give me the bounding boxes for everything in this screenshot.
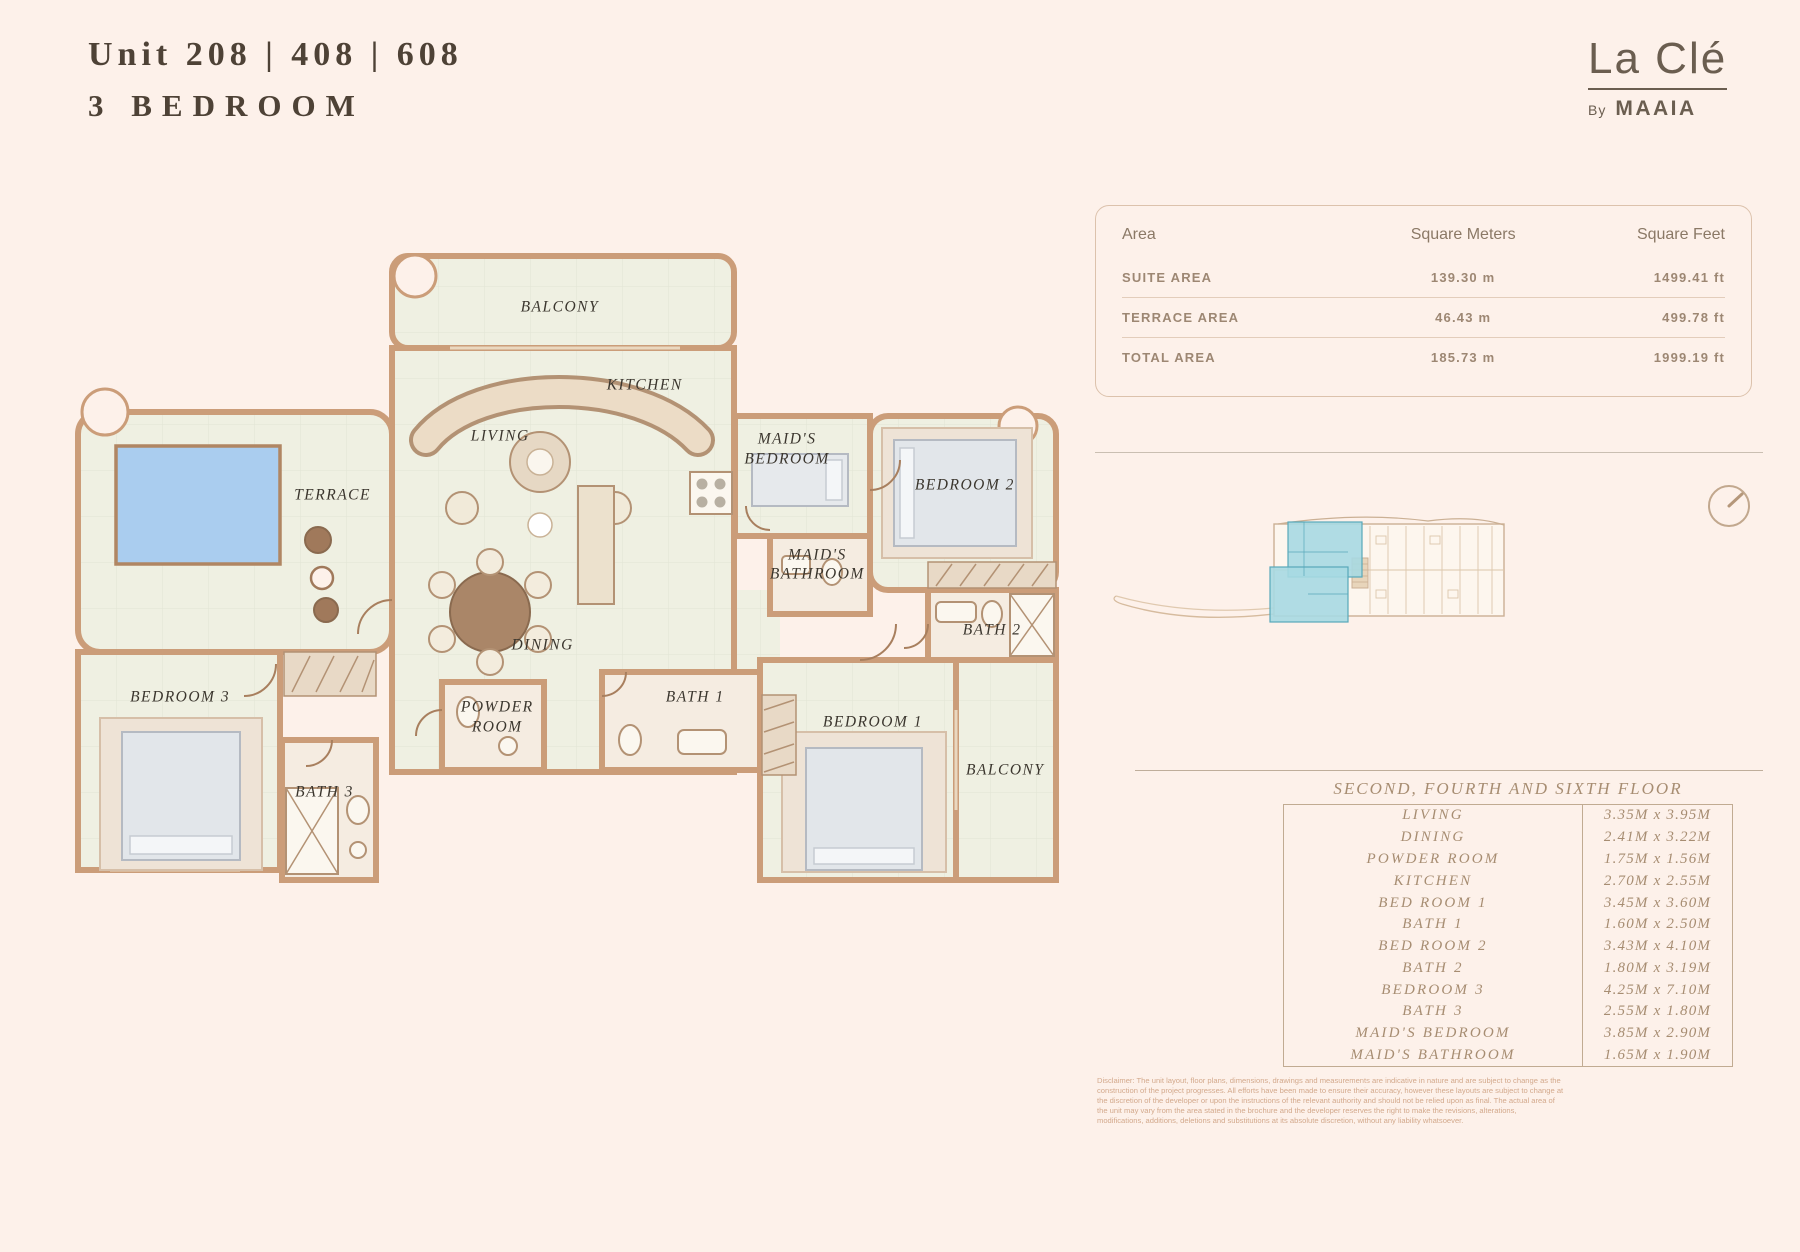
dim-room: MAID'S BEDROOM bbox=[1284, 1023, 1582, 1045]
dim-size: 1.80M x 3.19M bbox=[1582, 957, 1732, 979]
table-row: MAID'S BEDROOM3.85M x 2.90M bbox=[1284, 1023, 1732, 1045]
key-plan-drawing bbox=[1108, 512, 1538, 647]
row-label: TOTAL AREA bbox=[1122, 350, 1360, 365]
dim-room: BED ROOM 1 bbox=[1284, 892, 1582, 914]
dim-size: 3.43M x 4.10M bbox=[1582, 936, 1732, 958]
row-sqm: 185.73 m bbox=[1360, 350, 1566, 365]
row-label: TERRACE AREA bbox=[1122, 310, 1360, 325]
room-label-terrace: TERRACE bbox=[294, 485, 371, 504]
dim-size: 1.65M x 1.90M bbox=[1582, 1045, 1732, 1067]
brand-logo: La Clé By MAAIA bbox=[1588, 34, 1727, 121]
table-row: POWDER ROOM1.75M x 1.56M bbox=[1284, 849, 1732, 871]
room-label-maids-bathroom: MAID'S BATHROOM bbox=[758, 546, 876, 585]
table-row: LIVING3.35M x 3.95M bbox=[1284, 805, 1732, 827]
floor-dimensions-title: SECOND, FOURTH AND SIXTH FLOOR bbox=[1283, 779, 1733, 799]
room-label-maids-bedroom: MAID'S BEDROOM bbox=[728, 430, 846, 469]
room-label-bath1: BATH 1 bbox=[666, 688, 725, 707]
room-label-bedroom2: BEDROOM 2 bbox=[915, 475, 1015, 494]
row-label: SUITE AREA bbox=[1122, 270, 1360, 285]
row-sqft: 499.78 ft bbox=[1566, 310, 1725, 325]
brand-company: MAAIA bbox=[1615, 97, 1696, 121]
dim-room: BATH 3 bbox=[1284, 1001, 1582, 1023]
dim-room: DINING bbox=[1284, 827, 1582, 849]
sqm-col-header: Square Meters bbox=[1360, 226, 1566, 244]
room-label-balcony-right: BALCONY bbox=[966, 760, 1045, 779]
floor-plan: BALCONY KITCHEN LIVING MAID'S BEDROOM BE… bbox=[70, 240, 1080, 1010]
brand-name: La Clé bbox=[1588, 34, 1727, 90]
table-row: BATH 32.55M x 1.80M bbox=[1284, 1001, 1732, 1023]
room-label-balcony-top: BALCONY bbox=[521, 297, 600, 316]
dim-room: BEDROOM 3 bbox=[1284, 979, 1582, 1001]
area-col-header: Area bbox=[1122, 226, 1360, 244]
room-label-living: LIVING bbox=[471, 426, 530, 445]
dim-size: 2.55M x 1.80M bbox=[1582, 1001, 1732, 1023]
dim-size: 4.25M x 7.10M bbox=[1582, 979, 1732, 1001]
dim-room: MAID'S BATHROOM bbox=[1284, 1045, 1582, 1067]
table-row: MAID'S BATHROOM1.65M x 1.90M bbox=[1284, 1045, 1732, 1067]
sqft-col-header: Square Feet bbox=[1566, 226, 1725, 244]
table-row: BEDROOM 34.25M x 7.10M bbox=[1284, 979, 1732, 1001]
row-sqm: 46.43 m bbox=[1360, 310, 1566, 325]
dim-size: 3.35M x 3.95M bbox=[1582, 805, 1732, 827]
dim-size: 3.45M x 3.60M bbox=[1582, 892, 1732, 914]
page-title: Unit 208 | 408 | 608 3 BEDROOM bbox=[88, 36, 463, 124]
dim-room: LIVING bbox=[1284, 805, 1582, 827]
dim-room: BATH 2 bbox=[1284, 957, 1582, 979]
table-row: TERRACE AREA 46.43 m 499.78 ft bbox=[1122, 297, 1725, 337]
table-row: TOTAL AREA 185.73 m 1999.19 ft bbox=[1122, 337, 1725, 377]
brand-wordmark: La Clé bbox=[1588, 34, 1727, 90]
dim-room: BATH 1 bbox=[1284, 914, 1582, 936]
north-compass-icon bbox=[1705, 482, 1753, 530]
table-row: BED ROOM 23.43M x 4.10M bbox=[1284, 936, 1732, 958]
unit-title: Unit 208 | 408 | 608 bbox=[88, 36, 463, 74]
row-sqft: 1499.41 ft bbox=[1566, 270, 1725, 285]
dim-room: KITCHEN bbox=[1284, 870, 1582, 892]
disclaimer-text: Disclaimer: The unit layout, floor plans… bbox=[1097, 1076, 1565, 1126]
brand-byline: By MAAIA bbox=[1588, 97, 1727, 121]
dim-size: 1.60M x 2.50M bbox=[1582, 914, 1732, 936]
brand-by-label: By bbox=[1588, 102, 1606, 118]
room-label-powder-room: POWDER ROOM bbox=[438, 698, 556, 737]
dim-room: BED ROOM 2 bbox=[1284, 936, 1582, 958]
section-divider bbox=[1095, 452, 1763, 453]
area-table-header: Area Square Meters Square Feet bbox=[1122, 226, 1725, 258]
bedroom-subtitle: 3 BEDROOM bbox=[88, 88, 463, 124]
room-label-bath3: BATH 3 bbox=[295, 782, 354, 801]
dim-size: 3.85M x 2.90M bbox=[1582, 1023, 1732, 1045]
table-row: BATH 11.60M x 2.50M bbox=[1284, 914, 1732, 936]
table-row: KITCHEN2.70M x 2.55M bbox=[1284, 870, 1732, 892]
table-row: BATH 21.80M x 3.19M bbox=[1284, 957, 1732, 979]
dim-size: 2.70M x 2.55M bbox=[1582, 870, 1732, 892]
table-row: SUITE AREA 139.30 m 1499.41 ft bbox=[1122, 258, 1725, 297]
brochure-page: Unit 208 | 408 | 608 3 BEDROOM La Clé By… bbox=[0, 0, 1800, 1252]
table-row: DINING2.41M x 3.22M bbox=[1284, 827, 1732, 849]
room-label-kitchen: KITCHEN bbox=[607, 375, 683, 394]
dim-room: POWDER ROOM bbox=[1284, 849, 1582, 871]
table-row: BED ROOM 13.45M x 3.60M bbox=[1284, 892, 1732, 914]
row-sqm: 139.30 m bbox=[1360, 270, 1566, 285]
room-label-dining: DINING bbox=[511, 635, 573, 654]
section-divider bbox=[1135, 770, 1763, 771]
building-key-plan bbox=[1108, 512, 1538, 647]
floor-plan-drawing bbox=[70, 240, 1080, 1010]
room-label-bath2: BATH 2 bbox=[963, 620, 1022, 639]
floor-dimensions-table: LIVING3.35M x 3.95M DINING2.41M x 3.22M … bbox=[1283, 804, 1733, 1067]
dim-size: 1.75M x 1.56M bbox=[1582, 849, 1732, 871]
row-sqft: 1999.19 ft bbox=[1566, 350, 1725, 365]
room-label-bedroom1: BEDROOM 1 bbox=[823, 712, 923, 731]
area-table: Area Square Meters Square Feet SUITE ARE… bbox=[1095, 205, 1752, 397]
dim-size: 2.41M x 3.22M bbox=[1582, 827, 1732, 849]
room-label-bedroom3: BEDROOM 3 bbox=[130, 688, 230, 707]
